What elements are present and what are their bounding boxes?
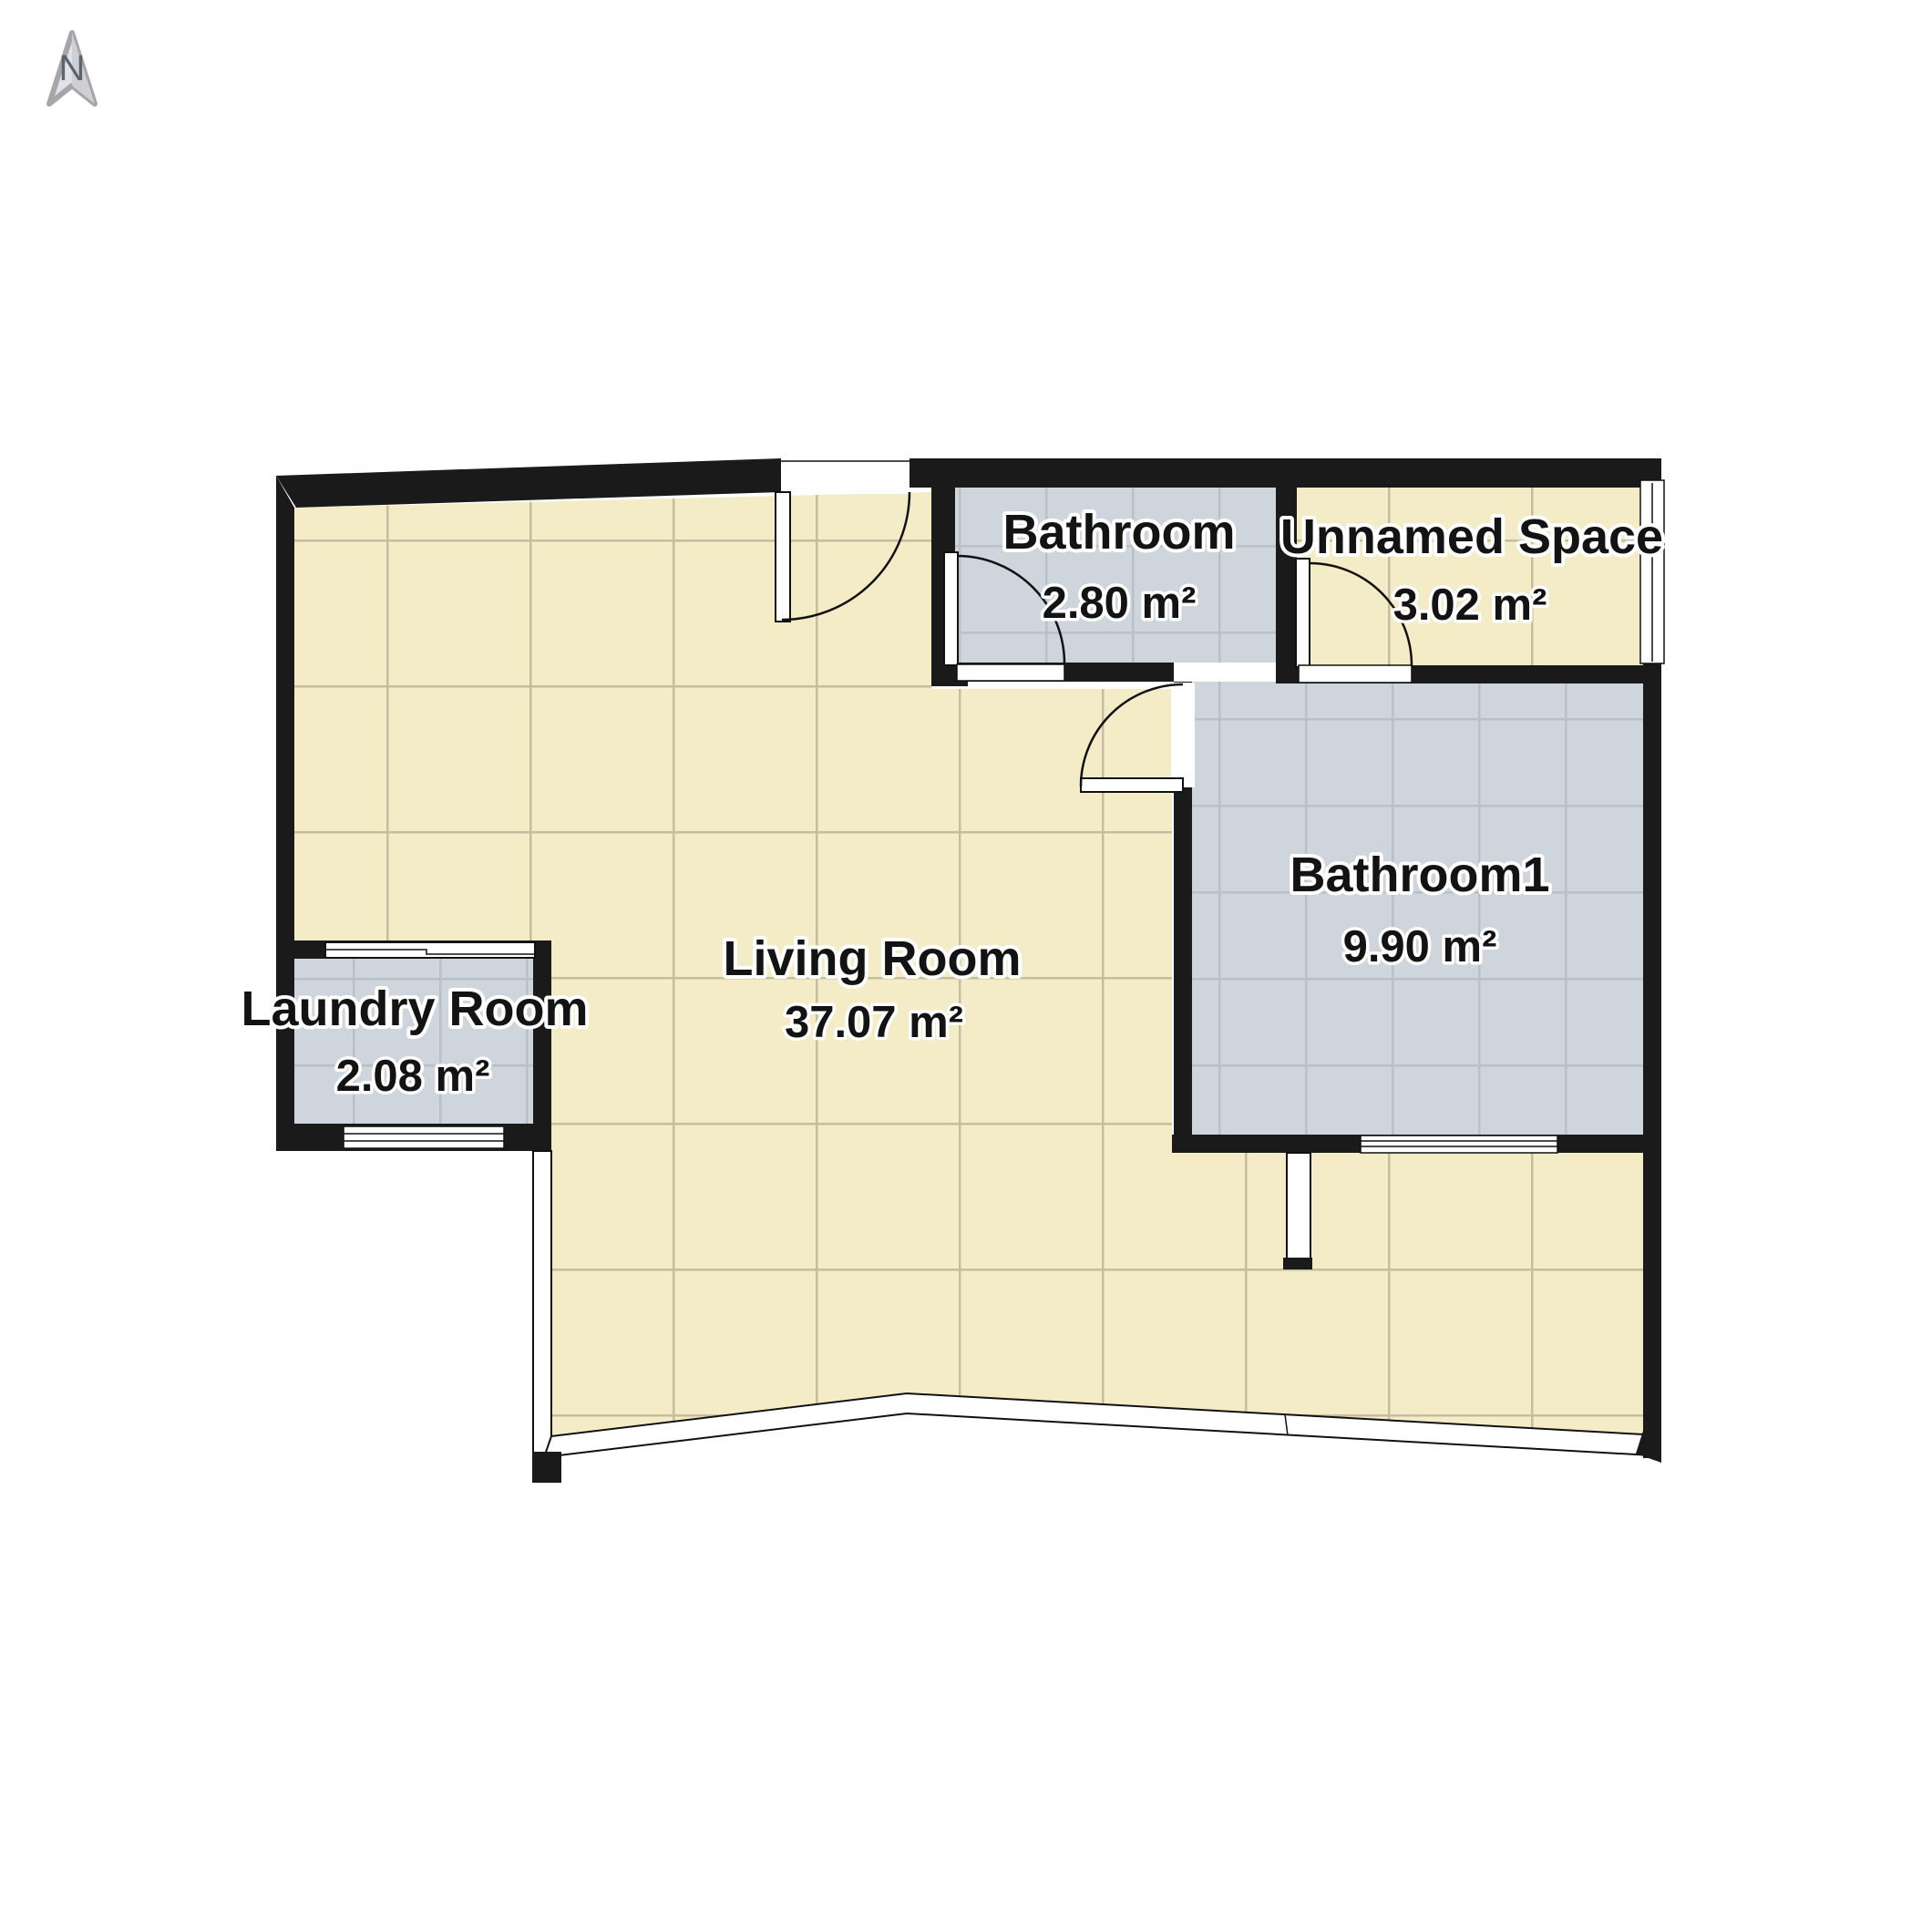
bathroom-area: 2.80 m²	[1043, 579, 1197, 628]
bathroom1-floor	[1192, 682, 1643, 1135]
north-label: N	[59, 48, 86, 88]
corner-cap-bottom-left	[532, 1452, 561, 1483]
laundry-room-area: 2.08 m²	[336, 1052, 490, 1101]
living-room-area: 37.07 m²	[785, 998, 963, 1047]
bathroom1-sliding-leaf	[1287, 1153, 1310, 1260]
unnamed-space-area: 3.02 m²	[1393, 581, 1547, 630]
bathroom1-door-opening	[1171, 683, 1195, 787]
laundry-window	[344, 1126, 504, 1148]
bathroom1-sliding-leaf-cap	[1283, 1258, 1312, 1269]
bathroom1-window	[1361, 1136, 1557, 1153]
unnamed-space-label: Unnamed Space	[1280, 509, 1663, 564]
thin-wall-left	[533, 1151, 551, 1454]
laundry-room-label: Laundry Room	[241, 981, 588, 1036]
bathroom1-area: 9.90 m²	[1343, 922, 1497, 971]
living-room-door-opening	[781, 457, 909, 494]
unnamed-space-door-leaf	[1296, 559, 1310, 667]
living-room-label: Living Room	[724, 931, 1022, 986]
bathroom1-door-leaf	[1081, 778, 1183, 792]
bathroom-label: Bathroom	[1003, 505, 1236, 560]
living-room-door-leaf	[776, 492, 790, 622]
bathroom-door-open-leaf	[957, 664, 1064, 681]
floor-plan-svg: Living Room 37.07 m² Bathroom 2.80 m² Un…	[0, 0, 1932, 1932]
bathroom-door-leaf	[944, 552, 958, 665]
bathroom1-label: Bathroom1	[1290, 848, 1549, 902]
wall-left	[276, 476, 294, 1151]
wall-laundry-right	[533, 940, 551, 1151]
north-compass: N	[49, 33, 95, 104]
unnamed-space-door-open-leaf	[1299, 665, 1412, 683]
